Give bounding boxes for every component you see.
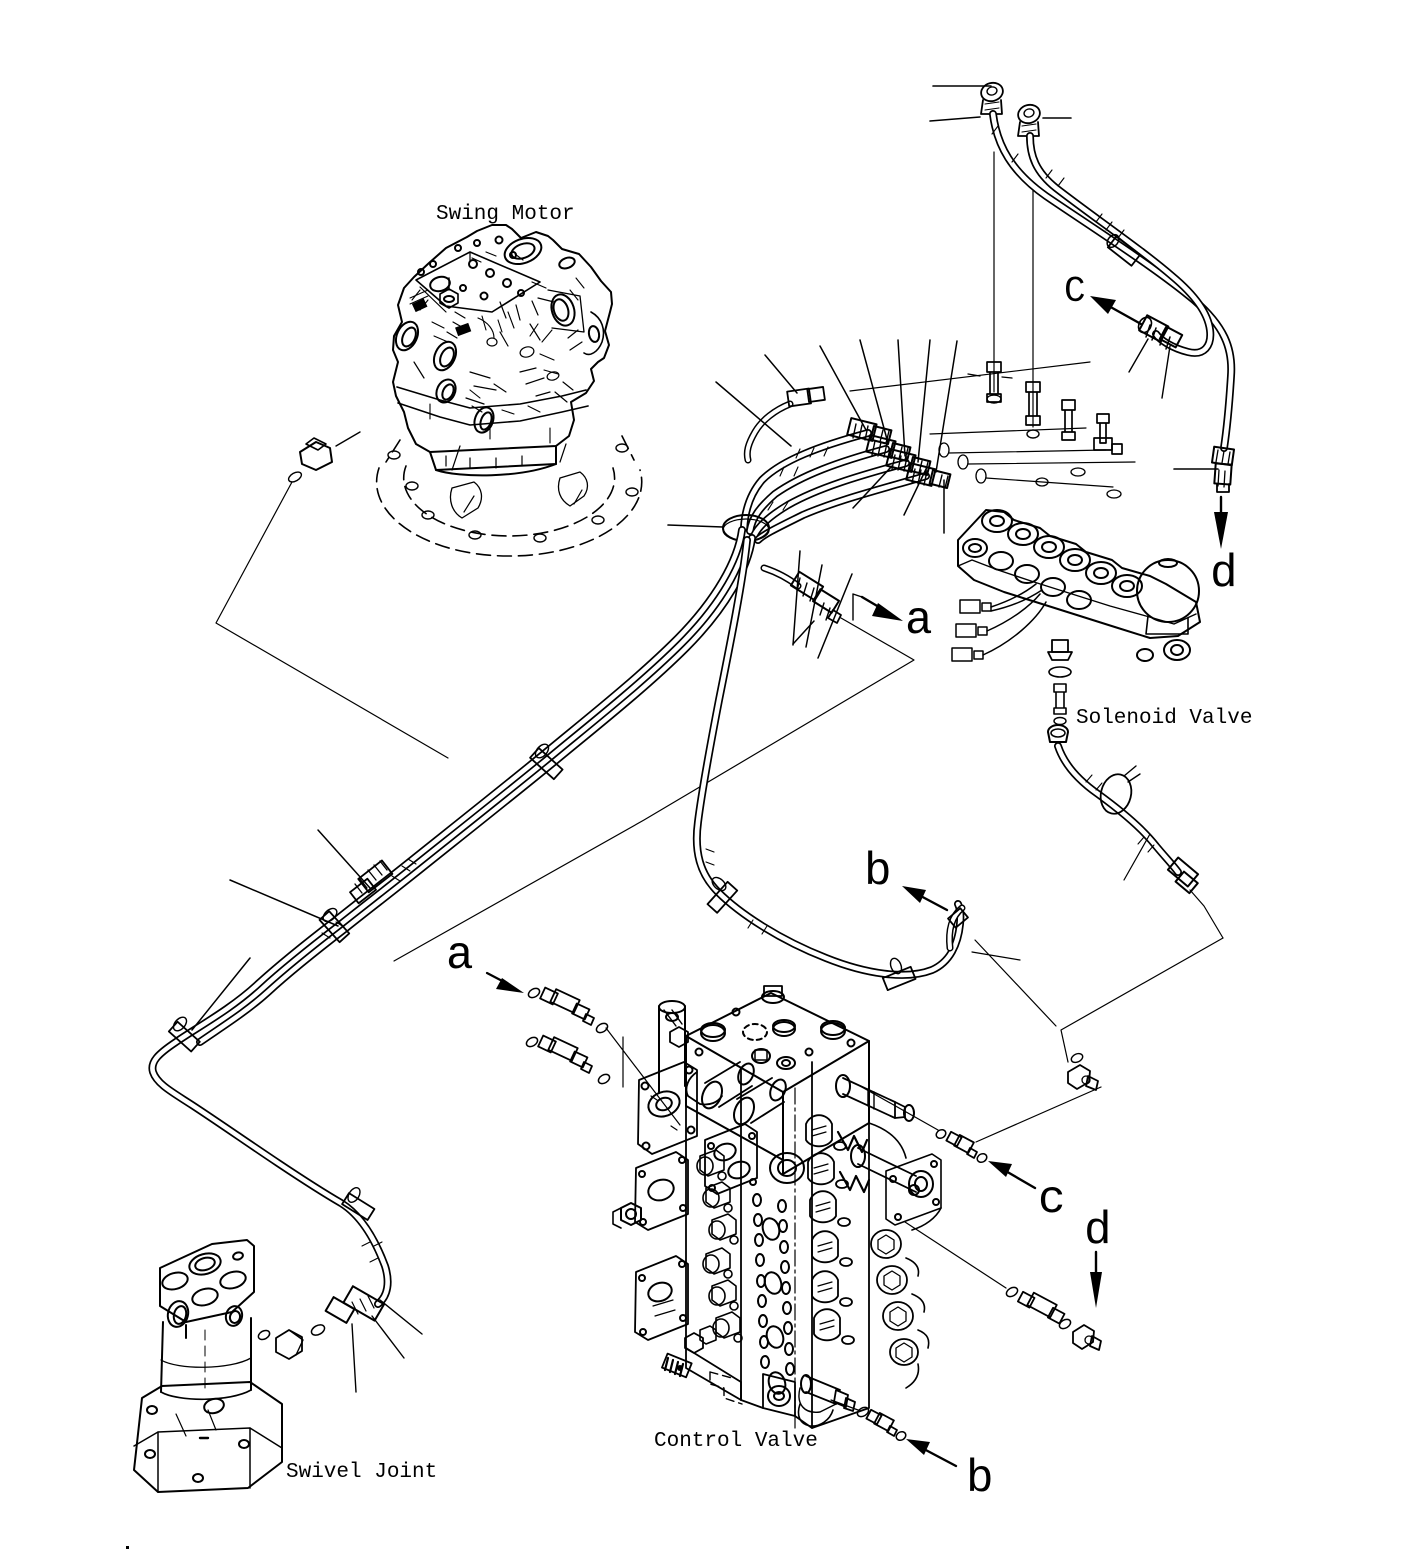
svg-text:Swing Motor: Swing Motor — [436, 203, 575, 226]
svg-text:b: b — [864, 846, 892, 898]
svg-text:C: C — [1064, 271, 1086, 312]
svg-text:a: a — [905, 595, 933, 647]
svg-text:d: d — [1210, 548, 1238, 600]
svg-text:Solenoid Valve: Solenoid Valve — [1076, 707, 1252, 730]
svg-text:c: c — [1038, 1174, 1066, 1226]
svg-text:Swivel Joint: Swivel Joint — [286, 1461, 437, 1484]
svg-text:d: d — [1084, 1205, 1112, 1257]
svg-text:a: a — [446, 930, 474, 982]
svg-text:Control Valve: Control Valve — [654, 1430, 818, 1453]
svg-text:b: b — [966, 1453, 994, 1505]
